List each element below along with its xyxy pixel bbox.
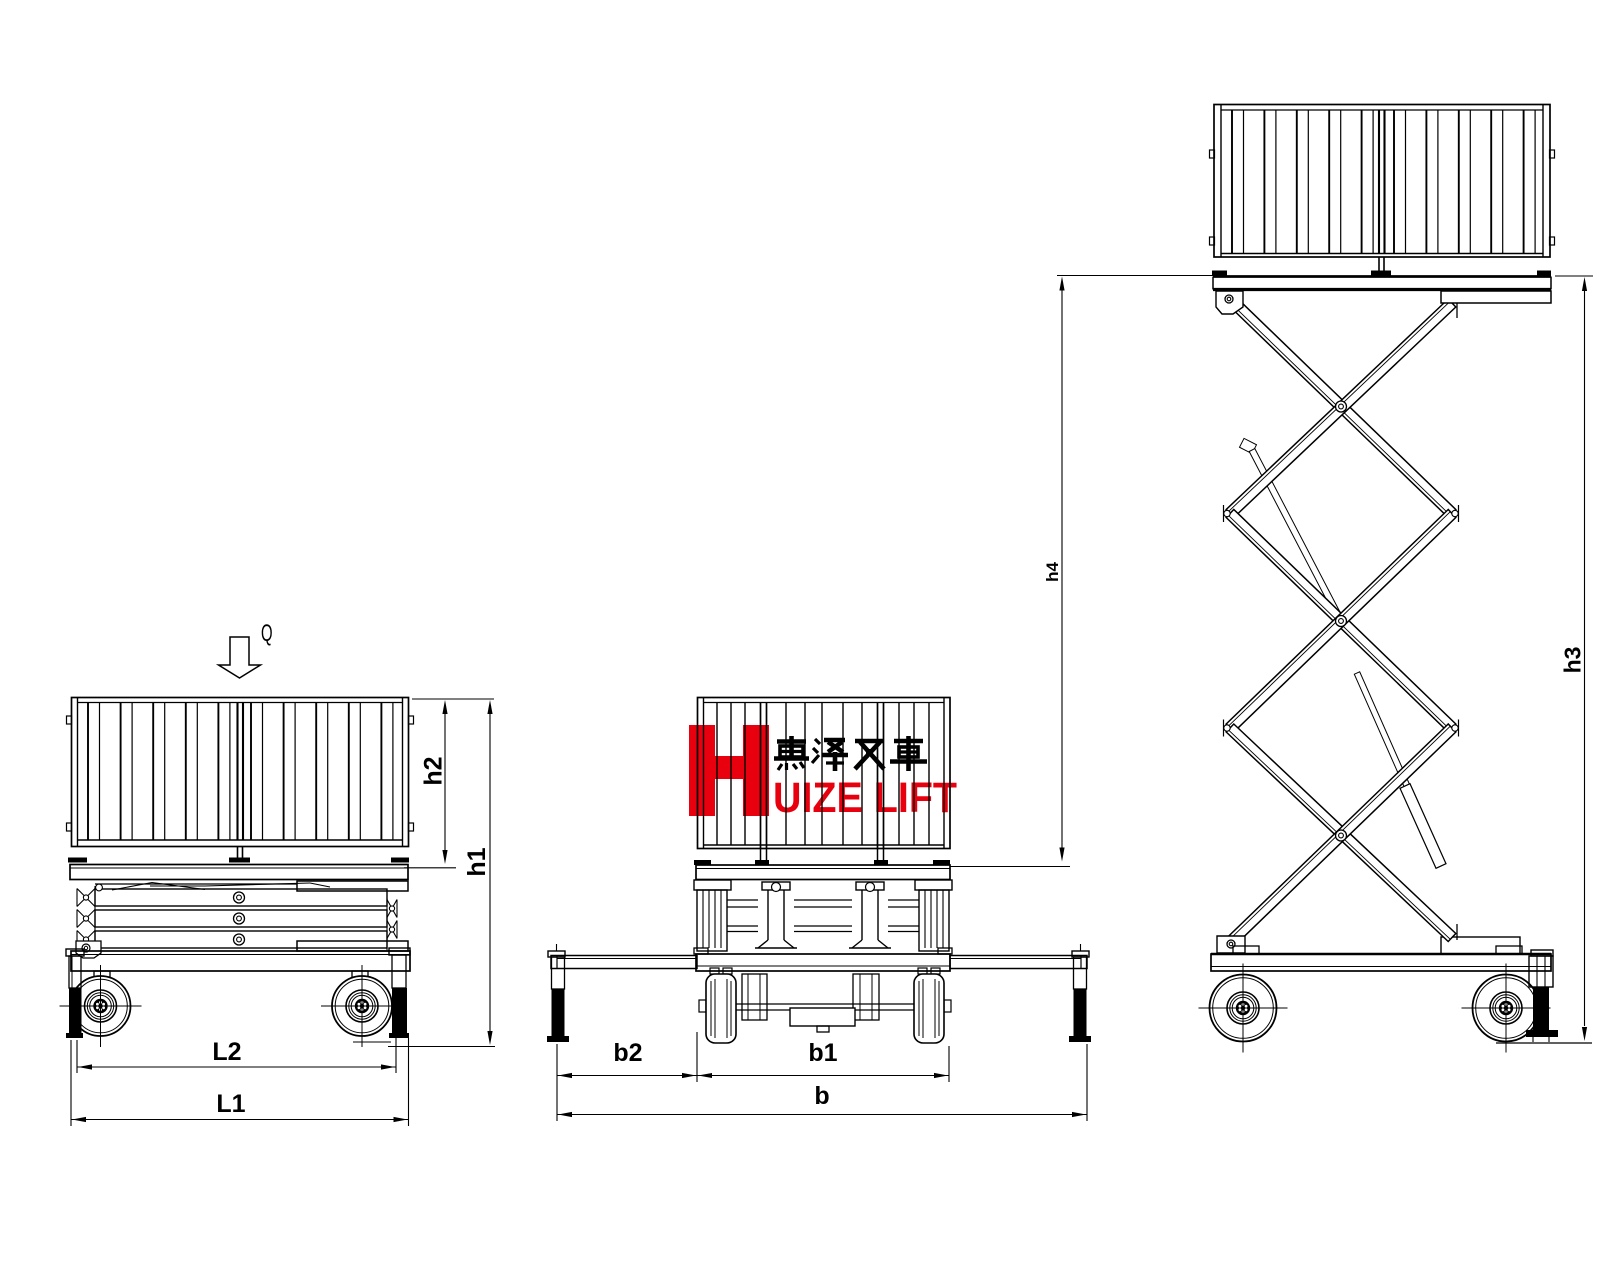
svg-text:h3: h3 — [1560, 647, 1586, 674]
svg-text:b: b — [814, 1082, 829, 1110]
svg-text:h4: h4 — [1043, 562, 1062, 582]
svg-text:L1: L1 — [216, 1090, 245, 1118]
svg-text:b2: b2 — [613, 1039, 642, 1067]
svg-text:h2: h2 — [420, 756, 448, 785]
svg-text:b1: b1 — [808, 1039, 837, 1067]
svg-text:L2: L2 — [212, 1038, 241, 1066]
svg-text:Q: Q — [261, 621, 273, 647]
svg-text:h1: h1 — [463, 847, 491, 876]
